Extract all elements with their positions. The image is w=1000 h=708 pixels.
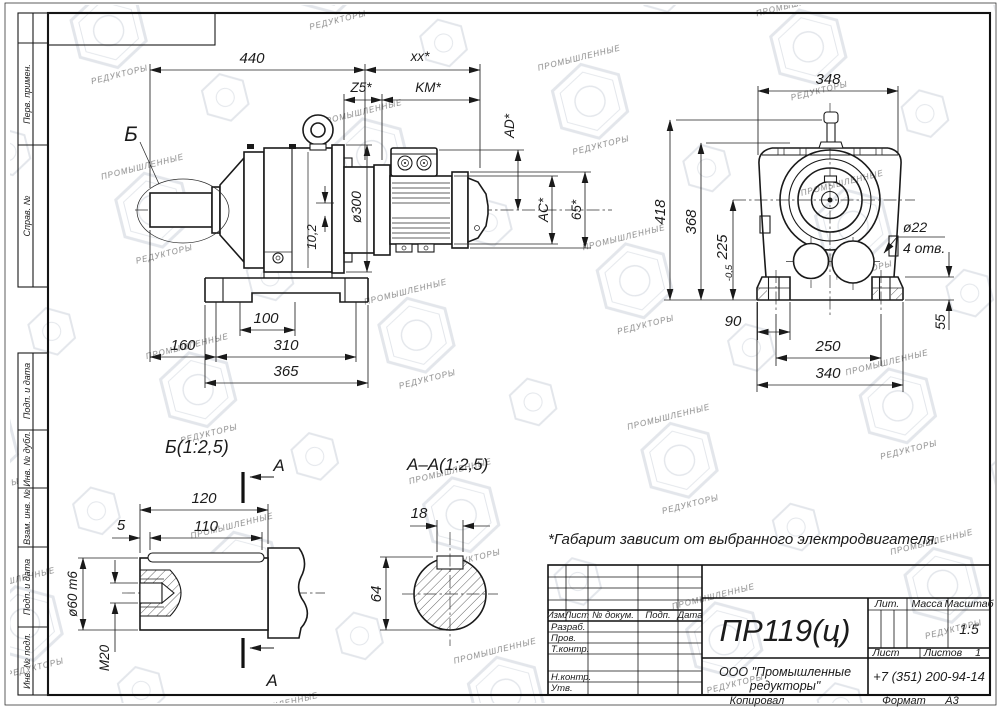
dim-65: 65*: [569, 199, 584, 220]
dim-ac: AC*: [536, 197, 551, 223]
sheets-value: 1: [975, 647, 981, 659]
dim-d60-m6: ø60 m6: [65, 571, 80, 617]
mass-label: Масса: [911, 598, 942, 610]
format-label: Формат: [882, 695, 926, 707]
margin-label-inv-podl: Инв. № подл.: [22, 633, 32, 689]
role-prov: Пров.: [551, 633, 576, 644]
dim-348: 348: [815, 71, 841, 88]
dim-ad: AD*: [502, 113, 517, 139]
drawing-sheet: ПРОМЫШЛЕННЫЕ РЕДУКТОРЫ Перв. примен. Спр…: [0, 0, 1000, 708]
role-nkontr: Н.контр.: [551, 672, 591, 683]
callout-letter-b: Б: [124, 123, 138, 146]
dim-55: 55: [932, 314, 948, 330]
margin-label-podp-data-1: Подп. и дата: [22, 363, 32, 419]
dim-d22: ø22: [903, 219, 927, 235]
role-tkontr: Т.контр.: [551, 644, 589, 655]
dim-418: 418: [652, 199, 669, 225]
dim-160: 160: [170, 337, 196, 354]
section-letter-a-bottom: А: [265, 671, 277, 690]
margin-label-inv-dubl: Инв. № дубл.: [22, 431, 32, 486]
section-letter-a-top: А: [272, 456, 284, 475]
dim-z5: Z5*: [349, 80, 372, 95]
company-phone: +7 (351) 200-94-14: [873, 669, 985, 684]
detail-b-title: Б(1:2,5): [165, 437, 229, 457]
format-value: А3: [944, 695, 959, 707]
margin-label-podp-data-2: Подп. и дата: [22, 559, 32, 615]
margin-label-sprav-no: Справ. №: [22, 195, 32, 236]
dim-64: 64: [368, 586, 385, 603]
change-col-docnum: № докум.: [592, 610, 634, 621]
dim-holes-count: 4 отв.: [903, 240, 945, 256]
margin-label-vzam-inv: Взам. инв. №: [22, 489, 32, 545]
role-razrab: Разраб.: [551, 622, 585, 633]
footnote-overall-dimension: *Габарит зависит от выбранного электродв…: [548, 531, 939, 548]
role-utv: Утв.: [550, 683, 573, 694]
dim-10-2: 10,2: [304, 224, 319, 250]
scale-label: Масштаб: [944, 598, 994, 610]
dim-310: 310: [273, 337, 299, 354]
dim-m20: М20: [97, 644, 112, 671]
copied-label: Копировал: [730, 695, 785, 707]
dim-5: 5: [117, 517, 126, 534]
dim-110: 110: [194, 518, 219, 535]
company-name-line1: ООО "Промышленные: [719, 665, 851, 679]
lit-label: Лит.: [874, 598, 900, 610]
sheets-label: Листов: [923, 647, 963, 659]
dim-xx: xx*: [410, 49, 431, 64]
dim-340: 340: [815, 365, 841, 382]
dim-225-tolerance: -0,5: [724, 264, 735, 281]
dim-90: 90: [725, 313, 742, 330]
sheet-label: Лист: [871, 647, 899, 659]
engineering-drawing: ПРОМЫШЛЕННЫЕ РЕДУКТОРЫ Перв. примен. Спр…: [0, 0, 1000, 708]
change-col-data: Дата: [676, 610, 702, 621]
document-number: ПР119(ц): [720, 613, 851, 648]
scale-value: 1:5: [959, 621, 979, 637]
dim-368: 368: [683, 209, 700, 235]
dim-440: 440: [239, 50, 265, 67]
dim-120: 120: [191, 490, 217, 507]
dim-225: 225: [714, 234, 731, 261]
margin-label-perv-primen: Перв. примен.: [22, 64, 32, 124]
change-col-list: Лист: [564, 610, 590, 621]
dim-100: 100: [253, 310, 279, 327]
dim-365: 365: [273, 363, 299, 380]
dim-km: KM*: [415, 80, 441, 95]
dim-d300: ø300: [348, 191, 364, 223]
company-name-line2: редукторы": [749, 679, 821, 693]
change-col-podp: Подп.: [645, 610, 670, 621]
dim-18: 18: [411, 505, 428, 522]
dim-250: 250: [814, 338, 841, 355]
section-aa-title: А–А(1:2,5): [406, 455, 488, 474]
